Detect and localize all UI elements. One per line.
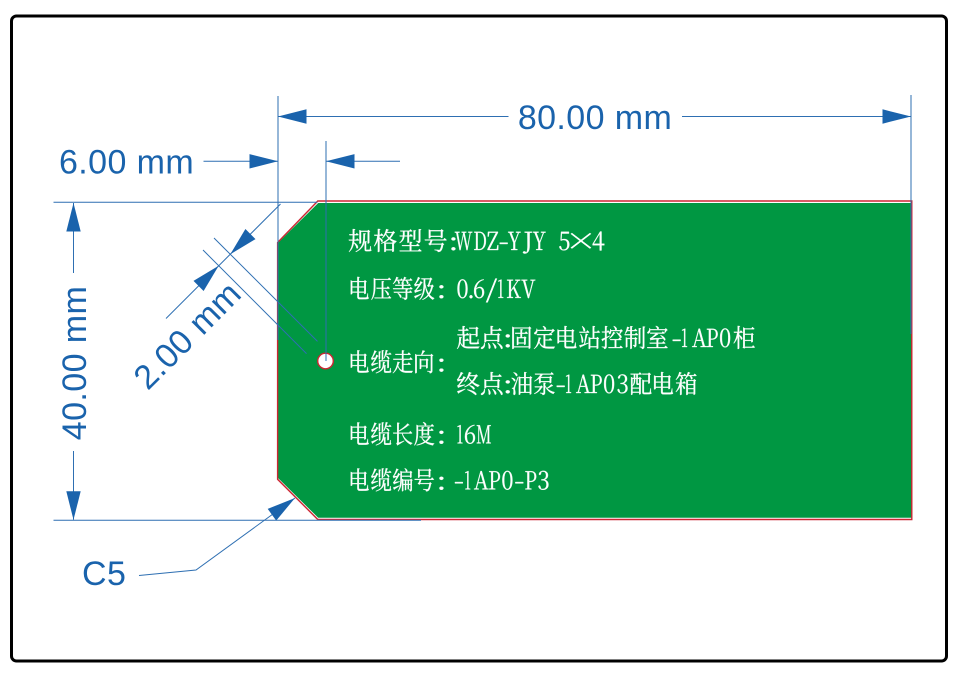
svg-text:6.00 mm: 6.00 mm — [59, 144, 194, 182]
svg-text:40.00 mm: 40.00 mm — [56, 286, 94, 440]
svg-text:80.00 mm: 80.00 mm — [518, 99, 672, 137]
svg-text:C5: C5 — [82, 555, 126, 593]
